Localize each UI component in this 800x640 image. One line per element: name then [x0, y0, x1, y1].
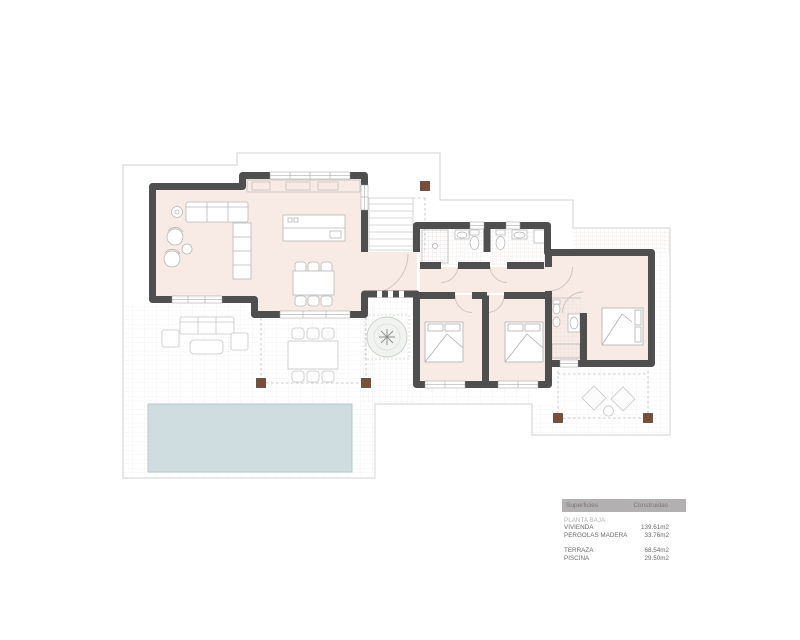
table-row: VIVIENDA 139.61m2	[562, 524, 686, 532]
bed-2	[505, 322, 543, 362]
row-label: TERRAZA	[564, 547, 593, 555]
row-value: 139.61m2	[641, 524, 669, 532]
table-row: PERGOLAS MADERA 33.76m2	[562, 532, 686, 540]
row-label: PERGOLAS MADERA	[564, 532, 627, 540]
row-value: 33.76m2	[644, 532, 669, 540]
row-label: VIVIENDA	[564, 524, 593, 532]
kitchen-island	[283, 215, 345, 241]
areas-table-header: Superficies Construidas	[562, 499, 686, 512]
header-built-label: Construidas	[633, 502, 668, 509]
table-spacer	[562, 539, 686, 547]
bed-1	[425, 322, 463, 362]
dining-table	[293, 262, 334, 306]
table-row: TERRAZA 68.54m2	[562, 547, 686, 555]
floor-label: PLANTA BAJA	[562, 517, 686, 524]
master-bed	[602, 308, 643, 345]
stairs	[369, 198, 413, 250]
row-value: 68.54m2	[644, 547, 669, 555]
outdoor-dining-set	[288, 328, 338, 382]
table-row: PISCINA 29.50m2	[562, 555, 686, 563]
header-surfaces-label: Superficies	[566, 502, 598, 509]
row-label: PISCINA	[564, 555, 589, 563]
floor-plan-page: Superficies Construidas PLANTA BAJA VIVI…	[0, 0, 800, 640]
swimming-pool	[148, 404, 352, 472]
row-value: 29.50m2	[644, 555, 669, 563]
areas-table: Superficies Construidas PLANTA BAJA VIVI…	[562, 499, 686, 562]
